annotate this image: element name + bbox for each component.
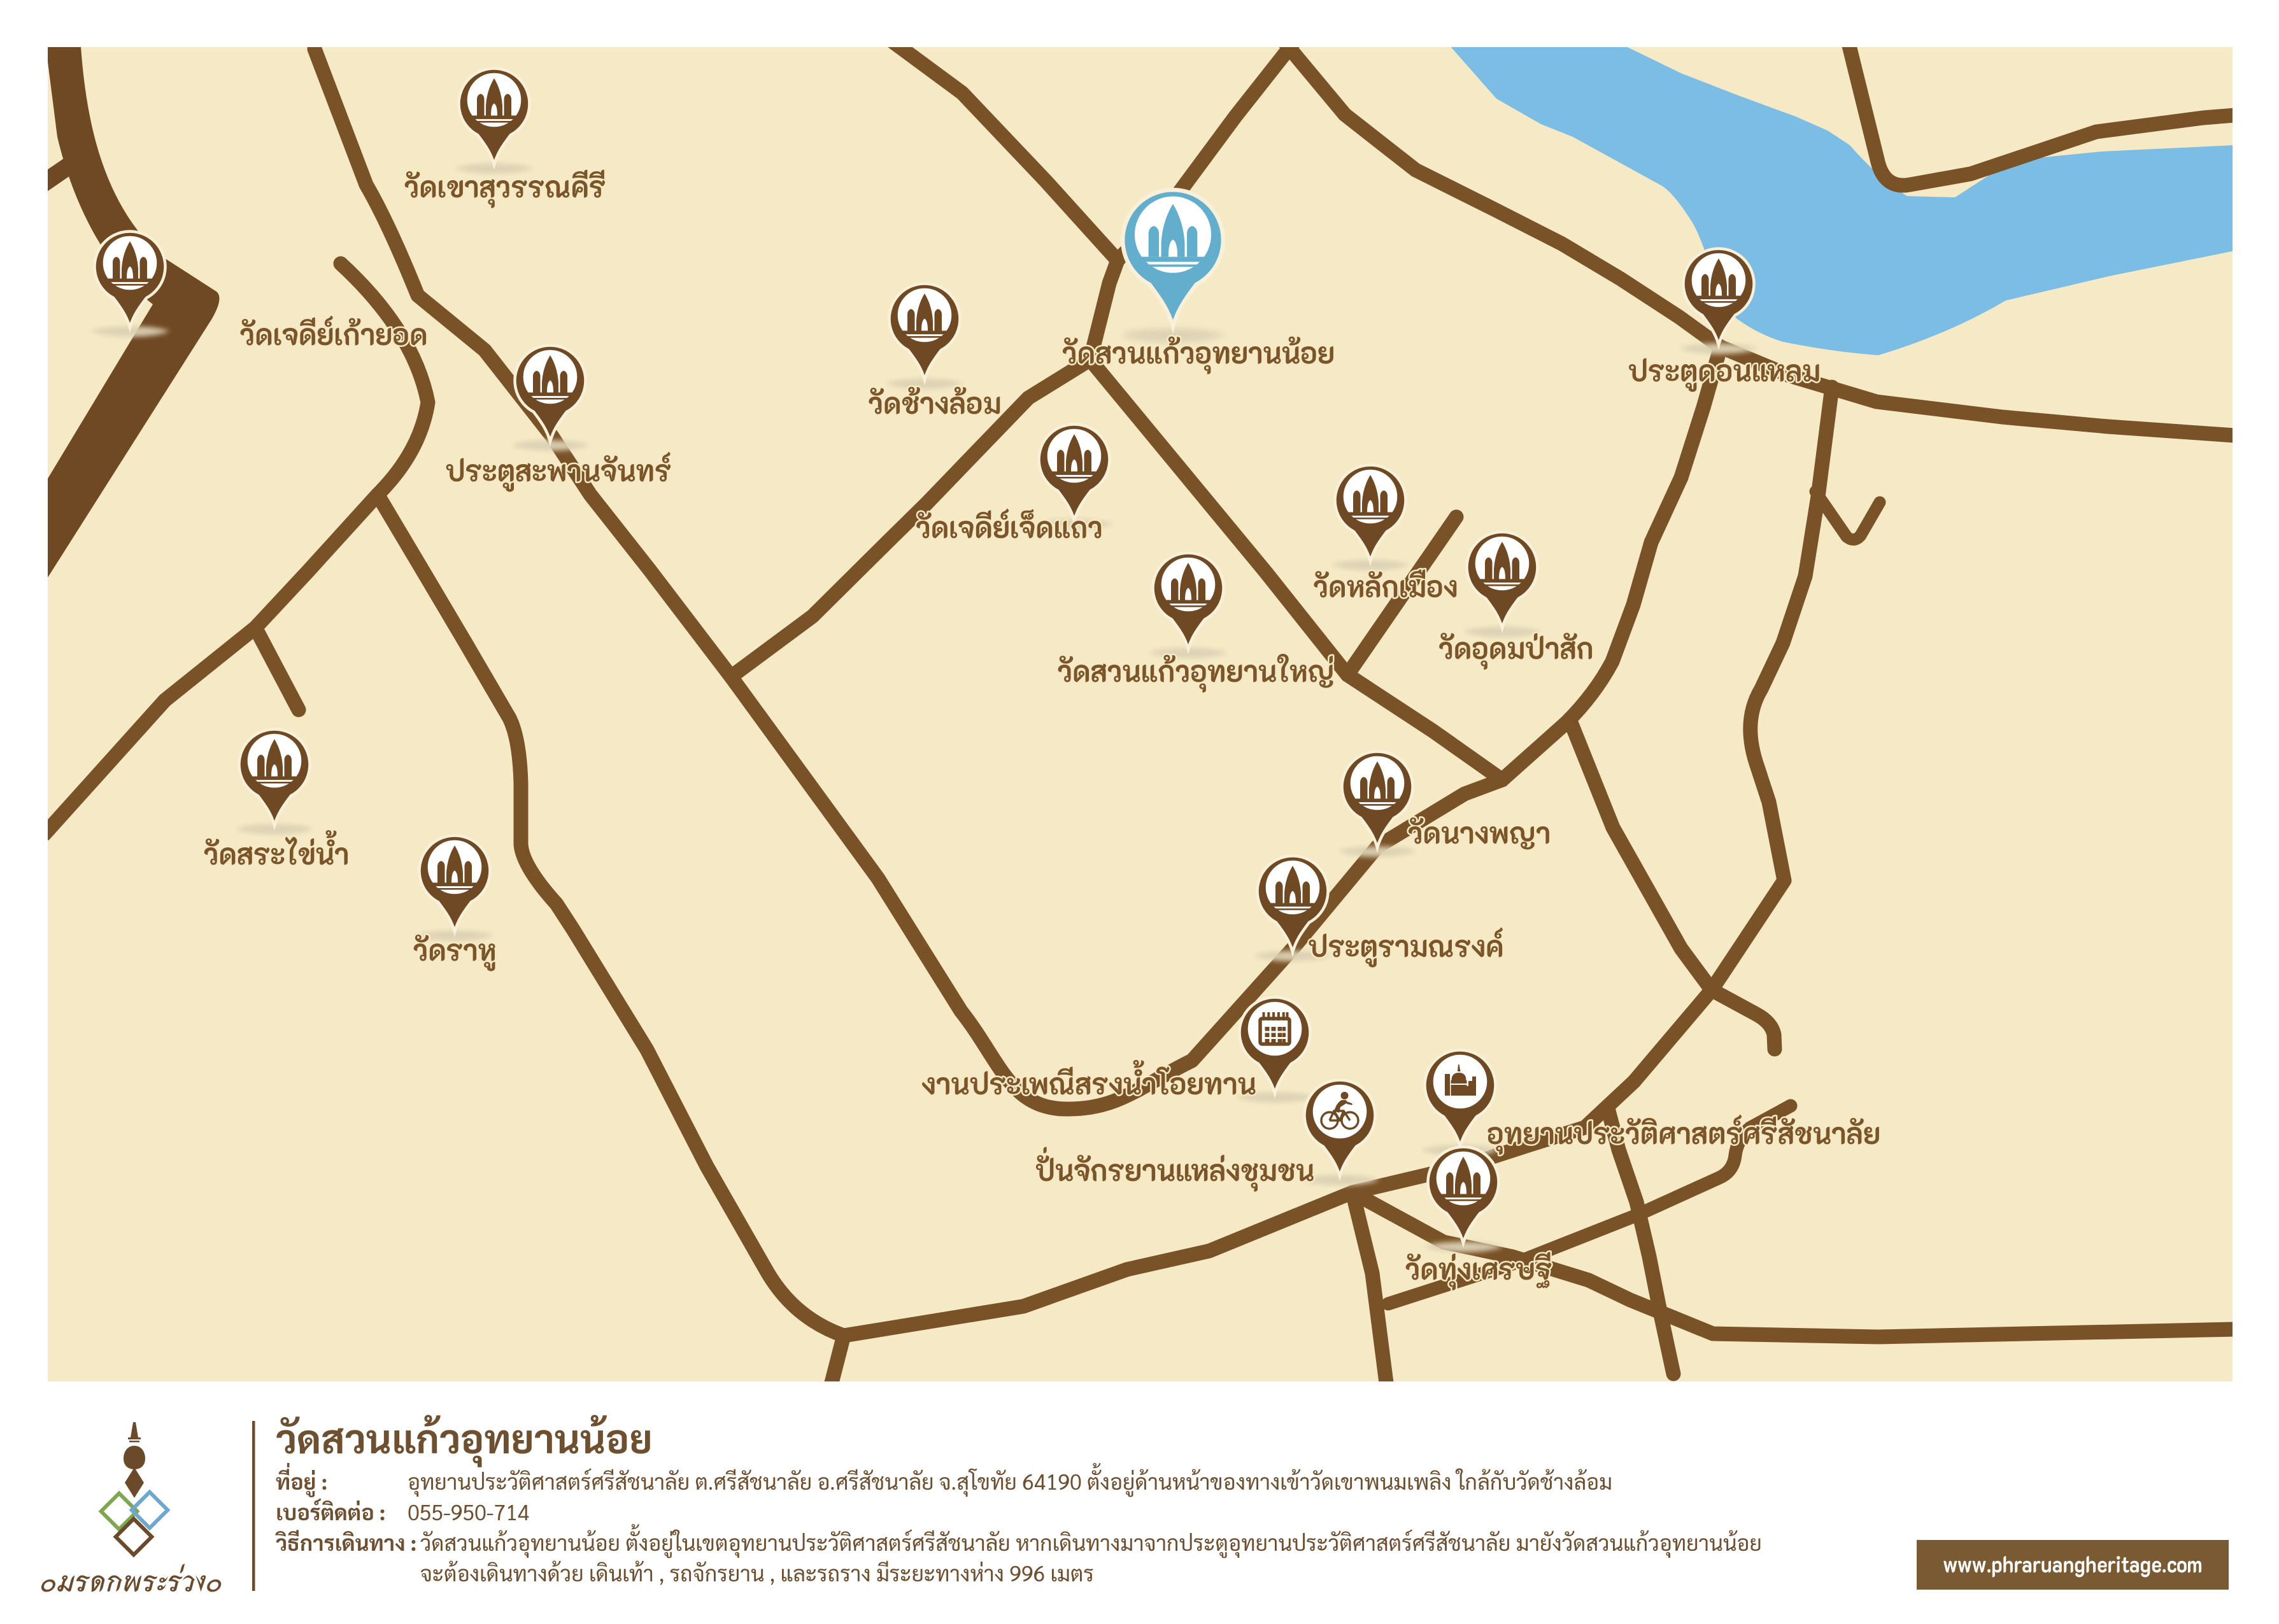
svg-text:ประตูสะพานจันทร์: ประตูสะพานจันทร์ [446,451,672,492]
svg-text:วัดทุ่งเศรษฐี: วัดทุ่งเศรษฐี [1405,1250,1552,1290]
svg-text:วัดเจดีย์เจ็ดแถว: วัดเจดีย์เจ็ดแถว [916,508,1103,546]
svg-text:วัดสวนแก้วอุทยานใหญ่: วัดสวนแก้วอุทยานใหญ่ [1058,653,1335,693]
svg-text:วัดสวนแก้วอุทยานน้อย: วัดสวนแก้วอุทยานน้อย [1062,334,1335,374]
svg-text:วัดเขาสุวรรณคีรี: วัดเขาสุวรรณคีรี [404,168,606,208]
svg-text:วัดสระไข่น้ำ: วัดสระไข่น้ำ [204,830,350,872]
svg-text:www.phraruangheritage.com: www.phraruangheritage.com [1943,1549,2203,1579]
svg-text:งานประเพณีสรงน้ำโอยทาน: งานประเพณีสรงน้ำโอยทาน [921,1059,1256,1102]
svg-text:ประตูดอนแหลม: ประตูดอนแหลม [1628,352,1821,392]
svg-text:จะต้องเดินทางด้วย เดินเท้า ,: จะต้องเดินทางด้วย เดินเท้า , รถจักรยาน ,… [420,1558,1094,1586]
svg-text:อุทยานประวัติศาสตร์ศรีสัชนาลัย: อุทยานประวัติศาสตร์ศรีสัชนาลัย ต.ศรีสัชน… [408,1464,1612,1497]
svg-text:055-950-714: 055-950-714 [408,1497,529,1525]
svg-text:ที่อยู่ :: ที่อยู่ : [276,1464,327,1497]
svg-text:วัดราหู: วัดราหู [413,931,497,971]
svg-text:วัดอุดมป่าสัก: วัดอุดมป่าสัก [1438,630,1594,670]
svg-text:ประตูรามณรงค์: ประตูรามณรงค์ [1309,927,1504,968]
svg-text:วิธีการเดินทาง :: วิธีการเดินทาง : [275,1528,416,1556]
svg-text:ปั่นจักรยานแหล่งชุมชน: ปั่นจักรยานแหล่งชุมชน [1035,1147,1314,1192]
svg-text:เบอร์ติดต่อ :: เบอร์ติดต่อ : [276,1497,385,1525]
svg-text:วัดช้างล้อม: วัดช้างล้อม [868,385,1001,421]
svg-text:วัดนางพญา: วัดนางพญา [1408,814,1551,851]
svg-text:วัดสวนแก้วอุทยานน้อย ตั้งอยู่: วัดสวนแก้วอุทยานน้อย ตั้งอยู่ในเขตอุทยาน… [420,1525,1762,1558]
svg-text:๐มรดกพระร่วง๐: ๐มรดกพระร่วง๐ [41,1561,223,1600]
svg-text:วัดเจดีย์เก้ายอด: วัดเจดีย์เก้ายอด [240,315,428,353]
svg-text:วัดสวนแก้วอุทยานน้อย: วัดสวนแก้วอุทยานน้อย [276,1412,653,1467]
svg-text:อุทยานประวัติศาสตร์ศรีสัชนาลัย: อุทยานประวัติศาสตร์ศรีสัชนาลัย [1487,1114,1880,1155]
svg-text:วัดหลักเมือง: วัดหลักเมือง [1313,568,1458,605]
